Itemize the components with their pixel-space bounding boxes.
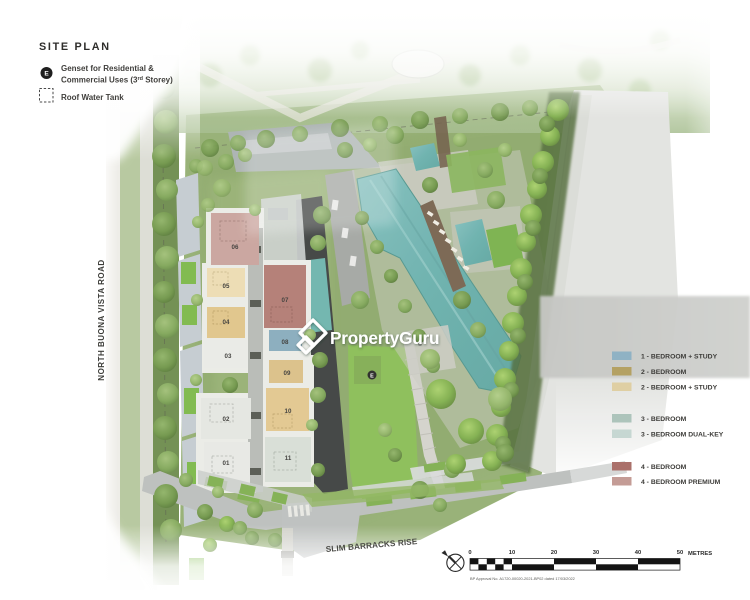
svg-text:3 - BEDROOM DUAL-KEY: 3 - BEDROOM DUAL-KEY	[641, 432, 724, 439]
svg-text:0: 0	[468, 550, 471, 556]
svg-text:METRES: METRES	[688, 551, 712, 557]
svg-text:10: 10	[509, 550, 515, 556]
svg-text:1 - BEDROOM + STUDY: 1 - BEDROOM + STUDY	[641, 354, 718, 361]
svg-text:3 - BEDROOM: 3 - BEDROOM	[641, 416, 687, 423]
svg-text:Roof Water Tank: Roof Water Tank	[61, 93, 124, 102]
svg-text:E: E	[44, 71, 49, 78]
svg-text:Genset for Residential &: Genset for Residential &	[61, 64, 154, 73]
svg-text:4 - BEDROOM PREMIUM: 4 - BEDROOM PREMIUM	[641, 479, 721, 486]
svg-text:30: 30	[593, 550, 599, 556]
svg-text:BP Approval No. A1720-00020-20: BP Approval No. A1720-00020-2021-BP02 da…	[470, 576, 575, 581]
svg-text:PropertyGuru: PropertyGuru	[330, 328, 439, 348]
svg-text:2 - BEDROOM: 2 - BEDROOM	[641, 369, 687, 376]
svg-text:4 - BEDROOM: 4 - BEDROOM	[641, 464, 687, 471]
svg-text:Commercial Uses (3rd Storey): Commercial Uses (3rd Storey)	[61, 76, 173, 85]
svg-text:NORTH BUONA VISTA ROAD: NORTH BUONA VISTA ROAD	[97, 259, 106, 380]
svg-text:50: 50	[677, 550, 683, 556]
svg-text:2 - BEDROOM + STUDY: 2 - BEDROOM + STUDY	[641, 385, 718, 392]
svg-text:SITE PLAN: SITE PLAN	[39, 41, 111, 53]
svg-text:20: 20	[551, 550, 557, 556]
svg-text:40: 40	[635, 550, 641, 556]
